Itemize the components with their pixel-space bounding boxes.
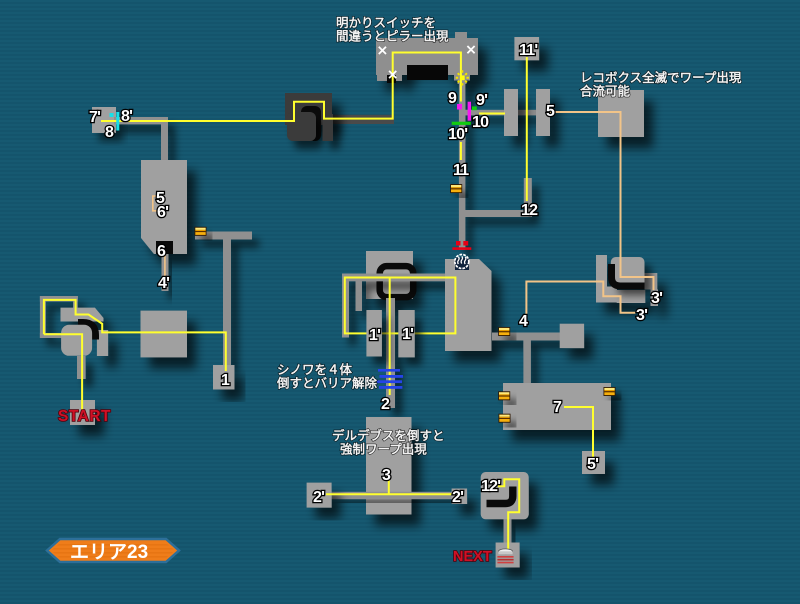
svg-text:シノワを４体: シノワを４体 [277, 362, 353, 377]
svg-text:4': 4' [158, 275, 169, 292]
svg-text:12': 12' [481, 478, 500, 495]
svg-text:6: 6 [157, 243, 166, 260]
svg-text:12: 12 [521, 202, 538, 219]
svg-text:1': 1' [402, 326, 413, 343]
svg-text:レコボクス全滅でワープ出現: レコボクス全滅でワープ出現 [580, 70, 742, 85]
svg-text:2': 2' [313, 489, 324, 506]
svg-text:間違うとピラー出現: 間違うとピラー出現 [336, 29, 449, 44]
svg-text:5: 5 [546, 103, 555, 120]
svg-text:8': 8' [121, 108, 132, 125]
svg-text:1: 1 [221, 372, 230, 389]
svg-text:3': 3' [636, 307, 647, 324]
svg-text:START: START [58, 408, 111, 425]
svg-text:明かりスイッチを: 明かりスイッチを [336, 16, 436, 30]
svg-text:5': 5' [587, 456, 598, 473]
svg-text:3: 3 [382, 467, 391, 484]
svg-text:2: 2 [381, 396, 390, 413]
svg-text:9: 9 [448, 90, 457, 107]
svg-text:10: 10 [472, 114, 489, 131]
svg-text:合流可能: 合流可能 [580, 84, 631, 99]
svg-text:デルデブスを倒すと: デルデブスを倒すと [332, 428, 445, 443]
svg-text:11: 11 [453, 162, 469, 179]
svg-text:3': 3' [651, 290, 662, 307]
svg-text:9': 9' [476, 92, 487, 109]
svg-text:2': 2' [452, 489, 463, 506]
svg-text:7': 7' [89, 109, 100, 126]
svg-text:1': 1' [369, 327, 380, 344]
svg-text:エリア23: エリア23 [70, 542, 148, 563]
svg-text:8: 8 [105, 124, 114, 141]
svg-text:倒すとバリア解除: 倒すとバリア解除 [276, 376, 378, 391]
svg-text:6': 6' [157, 204, 168, 221]
svg-text:NEXT: NEXT [453, 549, 492, 565]
svg-text:強制ワープ出現: 強制ワープ出現 [340, 442, 427, 457]
svg-text:10': 10' [448, 126, 467, 143]
svg-text:11': 11' [519, 42, 537, 59]
svg-text:7: 7 [553, 399, 562, 416]
svg-text:4: 4 [519, 313, 528, 330]
